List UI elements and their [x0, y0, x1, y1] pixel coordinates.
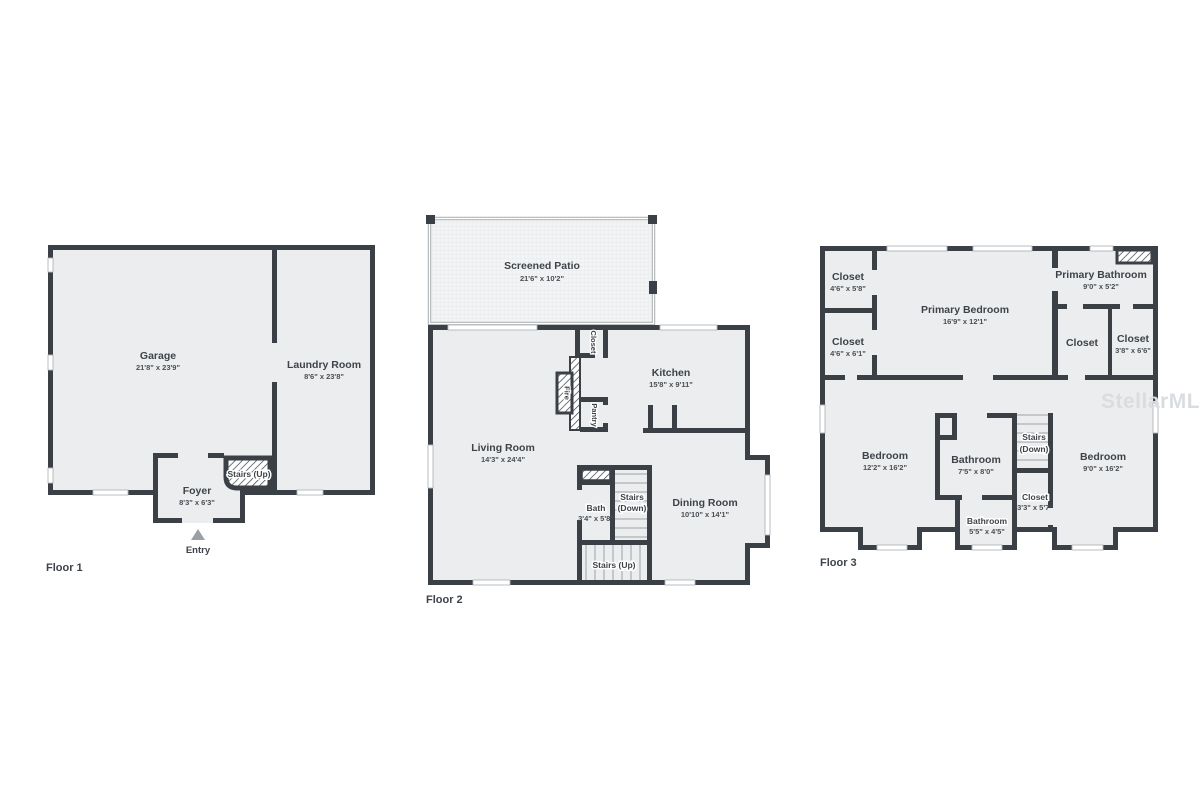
closet-s-dims: 3'3" x 5'7" [1017, 503, 1053, 512]
floor2-pantry-name: Pantry [590, 403, 599, 427]
floor2-stairs-down: Stairs (Down) [615, 474, 647, 537]
floor1-stairs-label: Stairs (Up) [228, 469, 271, 479]
floor1-plan: Stairs (Up) Garage 21'8" x 23'9" Laundry… [38, 240, 383, 590]
stairs-down-line1: Stairs [620, 492, 644, 502]
garage-dims: 21'8" x 23'9" [136, 363, 180, 372]
bath-name: Bath [587, 503, 606, 513]
primary-bathroom-name: Primary Bathroom [1055, 269, 1147, 281]
screened-patio: Screened Patio 21'6" x 10'2" [426, 215, 657, 324]
patio-name: Screened Patio [504, 260, 580, 272]
dining-name: Dining Room [672, 497, 737, 509]
bedroom-l-dims: 12'2" x 16'2" [863, 463, 907, 472]
laundry-dims: 8'6" x 23'8" [304, 372, 344, 381]
closet-r-name: Closet [1117, 333, 1150, 345]
bedroom-left-label: Bedroom 12'2" x 16'2" [862, 450, 908, 472]
foyer-name: Foyer [183, 485, 212, 497]
floor1-room-fill [48, 245, 375, 523]
closet-ml-dims: 4'6" x 6'1" [830, 349, 866, 358]
closet-mid-left-label: Closet 4'6" x 6'1" [830, 336, 866, 358]
closet-mid-label: Closet [1066, 337, 1099, 349]
foyer-dims: 8'3" x 6'3" [179, 498, 215, 507]
dining-room-label: Dining Room 10'10" x 14'1" [672, 497, 737, 519]
bathroom-b-name: Bathroom [967, 516, 1008, 526]
floor2-room-fill [428, 325, 770, 585]
bedroom-l-name: Bedroom [862, 450, 908, 462]
closet-mid-name: Closet [1066, 337, 1099, 349]
closet-tl-name: Closet [832, 271, 865, 283]
entry-label: Entry [186, 545, 211, 556]
fireplace-label: Fire [563, 386, 572, 400]
stairs-down-line2: (Down) [618, 503, 647, 513]
foyer-label: Foyer 8'3" x 6'3" [179, 485, 215, 507]
entry-marker: Entry [186, 529, 211, 556]
floor1-stairs-up: Stairs (Up) [226, 458, 271, 488]
laundry-name: Laundry Room [287, 359, 361, 371]
bedroom-right-label: Bedroom 9'0" x 16'2" [1080, 451, 1126, 473]
closet-r-dims: 3'8" x 6'6" [1115, 346, 1151, 355]
primary-bedroom-name: Primary Bedroom [921, 304, 1009, 316]
floor2-hatch-niche [582, 470, 610, 480]
pantry-label: Pantry [590, 403, 599, 427]
kitchen-dims: 15'8" x 9'11" [649, 380, 693, 389]
floor3-stairs-line2: (Down) [1020, 444, 1049, 454]
closet-tl-dims: 4'6" x 5'8" [830, 284, 866, 293]
floor3-stairs-line1: Stairs [1022, 432, 1046, 442]
bathroom-c-dims: 7'5" x 8'0" [958, 467, 994, 476]
bathroom-center-label: Bathroom 7'5" x 8'0" [951, 454, 1001, 476]
kitchen-name: Kitchen [652, 367, 691, 379]
entry-arrow-icon [191, 529, 205, 540]
closet-s-name: Closet [1022, 492, 1048, 502]
dining-dims: 10'10" x 14'1" [681, 510, 730, 519]
kitchen-label: Kitchen 15'8" x 9'11" [649, 367, 693, 389]
closet-right-label: Closet 3'8" x 6'6" [1115, 333, 1151, 355]
floor2-plan: Screened Patio 21'6" x 10'2" [420, 210, 780, 615]
garage-name: Garage [140, 350, 176, 362]
floor3-hatch-box [1117, 250, 1152, 263]
floor2-closet-name: Closet [589, 331, 598, 354]
floor2-stairs-up-label: Stairs (Up) [593, 560, 636, 570]
closet-label: Closet [589, 331, 598, 354]
floor3-title: Floor 3 [820, 557, 857, 569]
stellar-mls-watermark: StellarMLS [1101, 390, 1200, 414]
bedroom-r-dims: 9'0" x 16'2" [1083, 464, 1123, 473]
bathroom-b-dims: 5'5" x 4'5" [969, 527, 1005, 536]
bathroom-c-name: Bathroom [951, 454, 1001, 466]
floor1-title: Floor 1 [46, 562, 83, 574]
garage-label: Garage 21'8" x 23'9" [136, 350, 180, 372]
closet-top-left-label: Closet 4'6" x 5'8" [830, 271, 866, 293]
living-name: Living Room [471, 442, 535, 454]
patio-dims: 21'6" x 10'2" [520, 274, 564, 283]
bath-dims: 3'4" x 5'8" [578, 514, 614, 523]
closet-ml-name: Closet [832, 336, 865, 348]
bedroom-r-name: Bedroom [1080, 451, 1126, 463]
floorplan-canvas: Stairs (Up) Garage 21'8" x 23'9" Laundry… [0, 0, 1200, 800]
floor2-title: Floor 2 [426, 594, 463, 606]
living-dims: 14'3" x 24'4" [481, 455, 525, 464]
primary-bathroom-dims: 9'0" x 5'2" [1083, 282, 1119, 291]
primary-bedroom-dims: 16'9" x 12'1" [943, 317, 987, 326]
